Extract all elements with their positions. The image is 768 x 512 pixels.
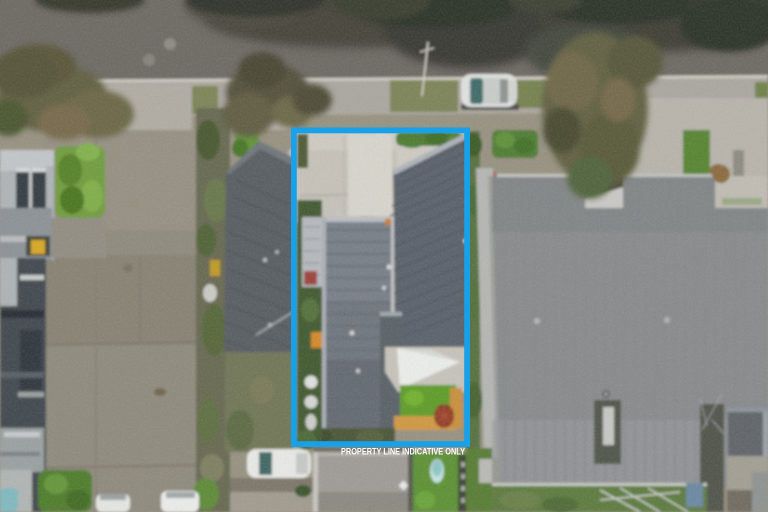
svg-text:PROPERTY LINE INDICATIVE ONLY: PROPERTY LINE INDICATIVE ONLY: [341, 447, 465, 457]
